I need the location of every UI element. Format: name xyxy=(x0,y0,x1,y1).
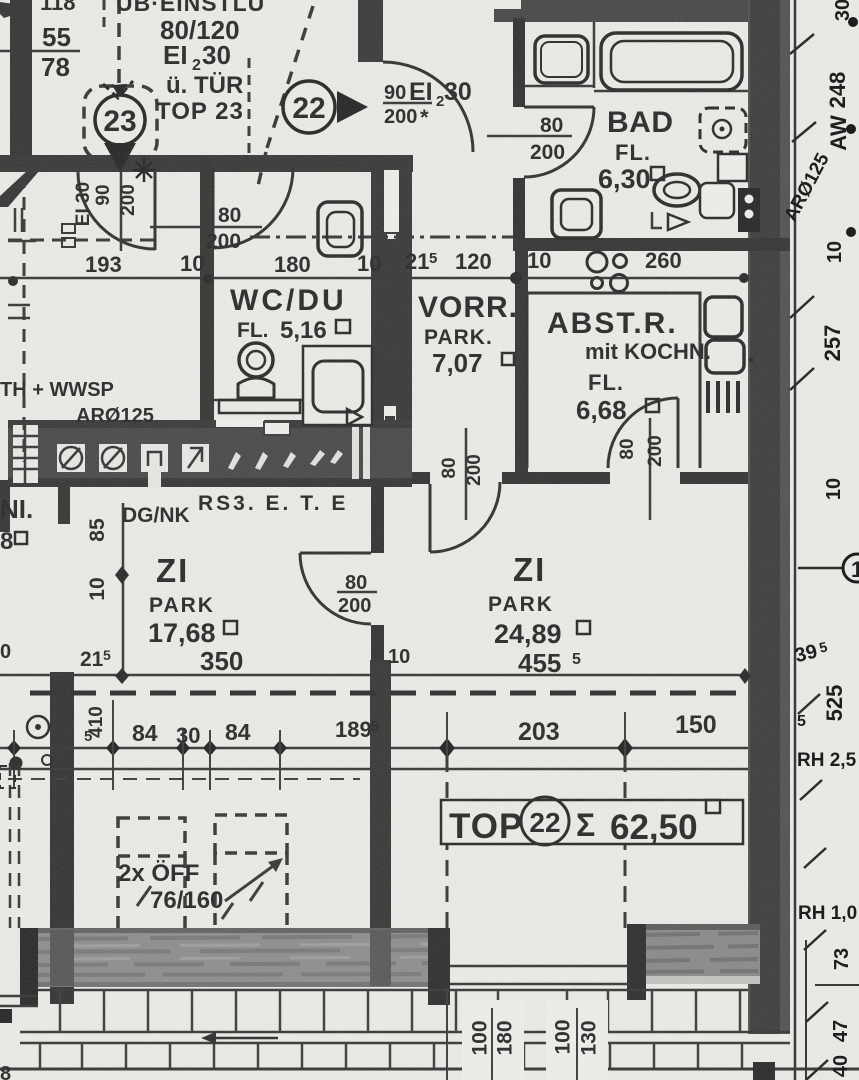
svg-text:30: 30 xyxy=(832,0,854,21)
svg-text:AW: AW xyxy=(826,115,851,151)
svg-text:248: 248 xyxy=(825,72,850,109)
svg-text:10: 10 xyxy=(823,478,845,500)
svg-text:47: 47 xyxy=(830,1020,852,1042)
svg-text:257: 257 xyxy=(820,325,845,362)
svg-text:40: 40 xyxy=(830,1055,852,1077)
svg-text:10: 10 xyxy=(824,241,846,263)
svg-text:RH 1,0: RH 1,0 xyxy=(798,903,857,924)
svg-text:RH 2,5: RH 2,5 xyxy=(797,750,857,771)
svg-text:73: 73 xyxy=(831,948,853,970)
svg-text:525: 525 xyxy=(822,685,847,722)
svg-text:1: 1 xyxy=(851,557,859,582)
svg-text:5: 5 xyxy=(797,713,806,730)
